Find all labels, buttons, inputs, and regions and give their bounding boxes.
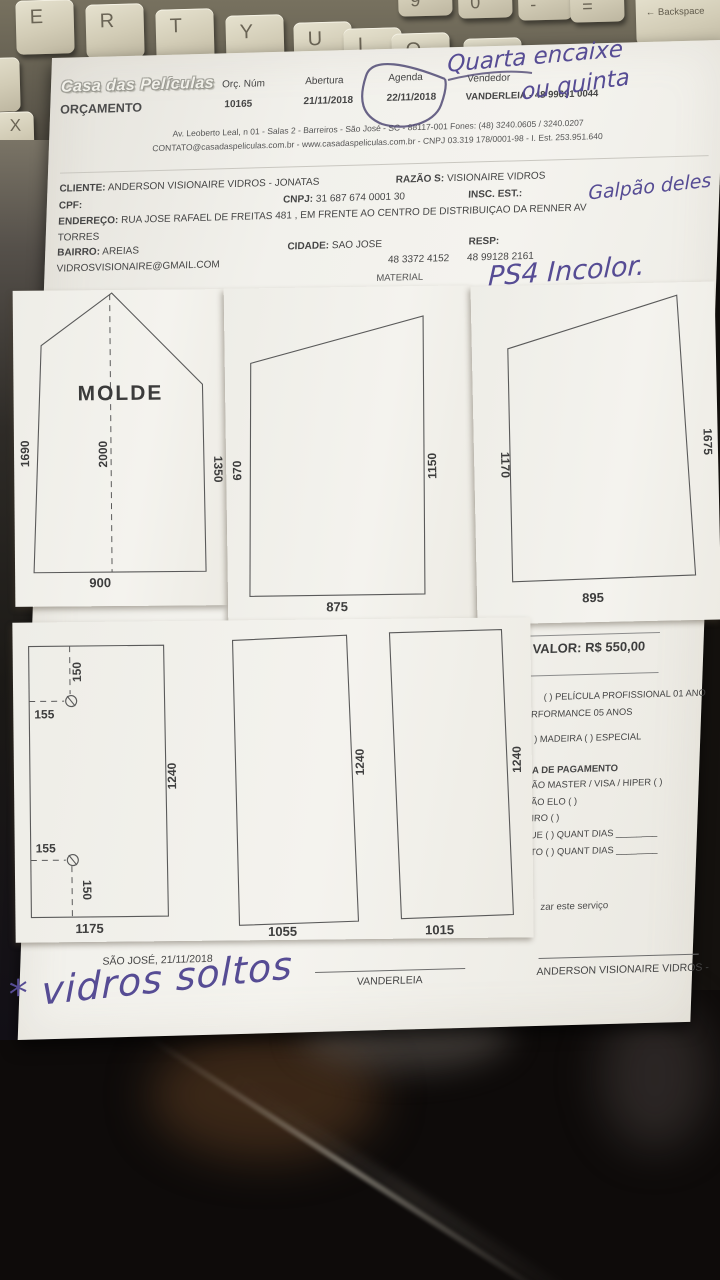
insc-label: INSC. EST.: (468, 188, 522, 200)
keyboard-key-minus: - (517, 0, 572, 21)
doc-type-title: ORÇAMENTO (60, 101, 142, 117)
glass2-dim-right: 1150 (425, 452, 439, 479)
glass-edge-reflection-soft (226, 1071, 595, 1280)
molde-shape (32, 292, 206, 572)
cnpj-value: 31 687 674 0001 30 (316, 191, 405, 204)
keyboard-key-r: R (85, 3, 144, 58)
signature-line-client (539, 954, 699, 959)
razao-value: VISIONAIRE VIDROS (447, 171, 546, 185)
rect3-dim-side: 1240 (510, 746, 524, 773)
signature-name-client: ANDERSON VISIONAIRE VIDROS - (515, 961, 720, 979)
client-row-4: TORRES (58, 232, 100, 244)
option-performance: RFORMANCE 05 ANOS (531, 707, 633, 720)
option-cartao-elo: ÃO ELO ( ) (531, 796, 577, 807)
glass2-dim-bottom: 875 (326, 599, 348, 614)
glass2-shape (246, 316, 427, 596)
bairro-value: AREIAS (102, 245, 139, 257)
endereco-cont: TORRES (58, 232, 100, 244)
option-cheque: UE ( ) QUANT DIAS ________ (530, 827, 658, 840)
header-separator (60, 155, 709, 174)
keyboard-key-0: 0 (457, 0, 512, 19)
rect1-shape (29, 645, 169, 917)
client-phone1: 48 3372 4152 (388, 253, 450, 266)
keyboard-key-equals: = (569, 0, 624, 23)
rectangles-diagram-sheet: 150 155 155 150 1240 1175 1240 1055 1240… (12, 617, 533, 942)
cnpj-label: CNPJ: (283, 194, 313, 206)
orc-num-value: 10165 (224, 99, 252, 111)
option-dinheiro: IRO ( ) (531, 813, 559, 824)
endereco-value: RUA JOSE RAFAEL DE FREITAS 481 , EM FREN… (121, 202, 587, 226)
endereco-label: ENDEREÇO: (58, 215, 118, 228)
keyboard-key-backspace: ← Backspace (635, 0, 720, 46)
option-pelicula: ( ) PELÍCULA PROFISSIONAL 01 ANO (544, 688, 706, 702)
cliente-label: CLIENTE: (59, 182, 106, 194)
client-row-3: ENDEREÇO: RUA JOSE RAFAEL DE FREITAS 481… (58, 202, 587, 227)
keyboard-key-e: E (15, 0, 74, 55)
keyboard-key-partial (0, 57, 21, 112)
rect1-hole-top-mark (67, 696, 75, 706)
cidade-value: SAO JOSE (332, 239, 382, 251)
glass3-shape (507, 295, 696, 582)
bairro-label: BAIRRO: (57, 247, 100, 259)
company-logo: Casa das Películas (61, 75, 215, 97)
glass3-dim-right: 1675 (701, 428, 716, 455)
valor-rule-top (519, 632, 660, 637)
valor-rule-bottom (517, 672, 658, 677)
molde-diagram-sheet: MOLDE 1690 2000 1350 900 (13, 289, 228, 607)
molde-dim-left: 1690 (18, 440, 32, 467)
molde-dim-bottom: 900 (89, 575, 111, 590)
rect2-dim-bottom: 1055 (268, 924, 297, 939)
rect1-dash-bottom (72, 866, 73, 917)
resp-label: RESP: (468, 236, 499, 248)
cliente-value: ANDERSON VISIONAIRE VIDROS - JONATAS (108, 177, 320, 194)
rect2-shape (232, 635, 358, 925)
rect1-dim-side: 1240 (165, 762, 179, 789)
signature-line-vanderleia (315, 968, 465, 973)
rect1-dim-top-inset: 155 (34, 707, 54, 721)
abertura-label: Abertura (305, 75, 344, 87)
cidade-label: CIDADE: (287, 240, 329, 252)
rect1-dim-top-offset: 150 (70, 662, 84, 682)
cpf-label: CPF: (59, 200, 83, 212)
rect1-dim-bottom-offset: 150 (80, 880, 94, 900)
rect1-dim-bottom: 1175 (75, 921, 103, 936)
signature-name-vanderleia: VANDERLEIA (314, 973, 465, 989)
molde-dim-center: 2000 (96, 440, 110, 467)
client-email: VIDROSVISIONAIRE@GMAIL.COM (56, 259, 220, 274)
glass2-diagram-sheet: 670 1150 875 (224, 285, 477, 624)
rect3-dim-bottom: 1015 (425, 922, 454, 937)
molde-centerline (110, 294, 112, 572)
material-label: MATERIAL (376, 272, 423, 284)
orc-num-label: Orç. Núm (222, 78, 265, 90)
option-boleto: TO ( ) QUANT DIAS ________ (530, 844, 658, 857)
glass3-dim-bottom: 895 (582, 590, 604, 605)
glass2-dim-left: 670 (230, 460, 244, 481)
service-note: zar este serviço (540, 900, 608, 913)
razao-label: RAZÃO S: (396, 173, 445, 185)
glass3-diagram-sheet: 1170 1675 895 (470, 281, 720, 624)
rect3-shape (389, 630, 513, 919)
valor-text: VALOR: R$ 550,00 (518, 638, 660, 657)
glass3-dim-left: 1170 (498, 452, 513, 479)
option-madeira-especial: ) MADEIRA ( ) ESPECIAL (534, 731, 641, 744)
keyboard-key-9: 9 (397, 0, 452, 17)
rect1-hole-bottom-mark (69, 855, 77, 865)
option-cartao-master: ÃO MASTER / VISA / HIPER ( ) (531, 777, 662, 791)
photo-of-order-form: E R T Y U I O P 9 0 - = ← Backspace X Ca… (0, 0, 720, 1280)
forma-pagamento-heading: A DE PAGAMENTO (532, 763, 618, 776)
rect2-dim-side: 1240 (353, 748, 367, 775)
molde-title: MOLDE (77, 382, 163, 406)
rect1-dim-bottom-inset: 155 (36, 841, 56, 855)
molde-dim-right: 1350 (211, 456, 225, 483)
